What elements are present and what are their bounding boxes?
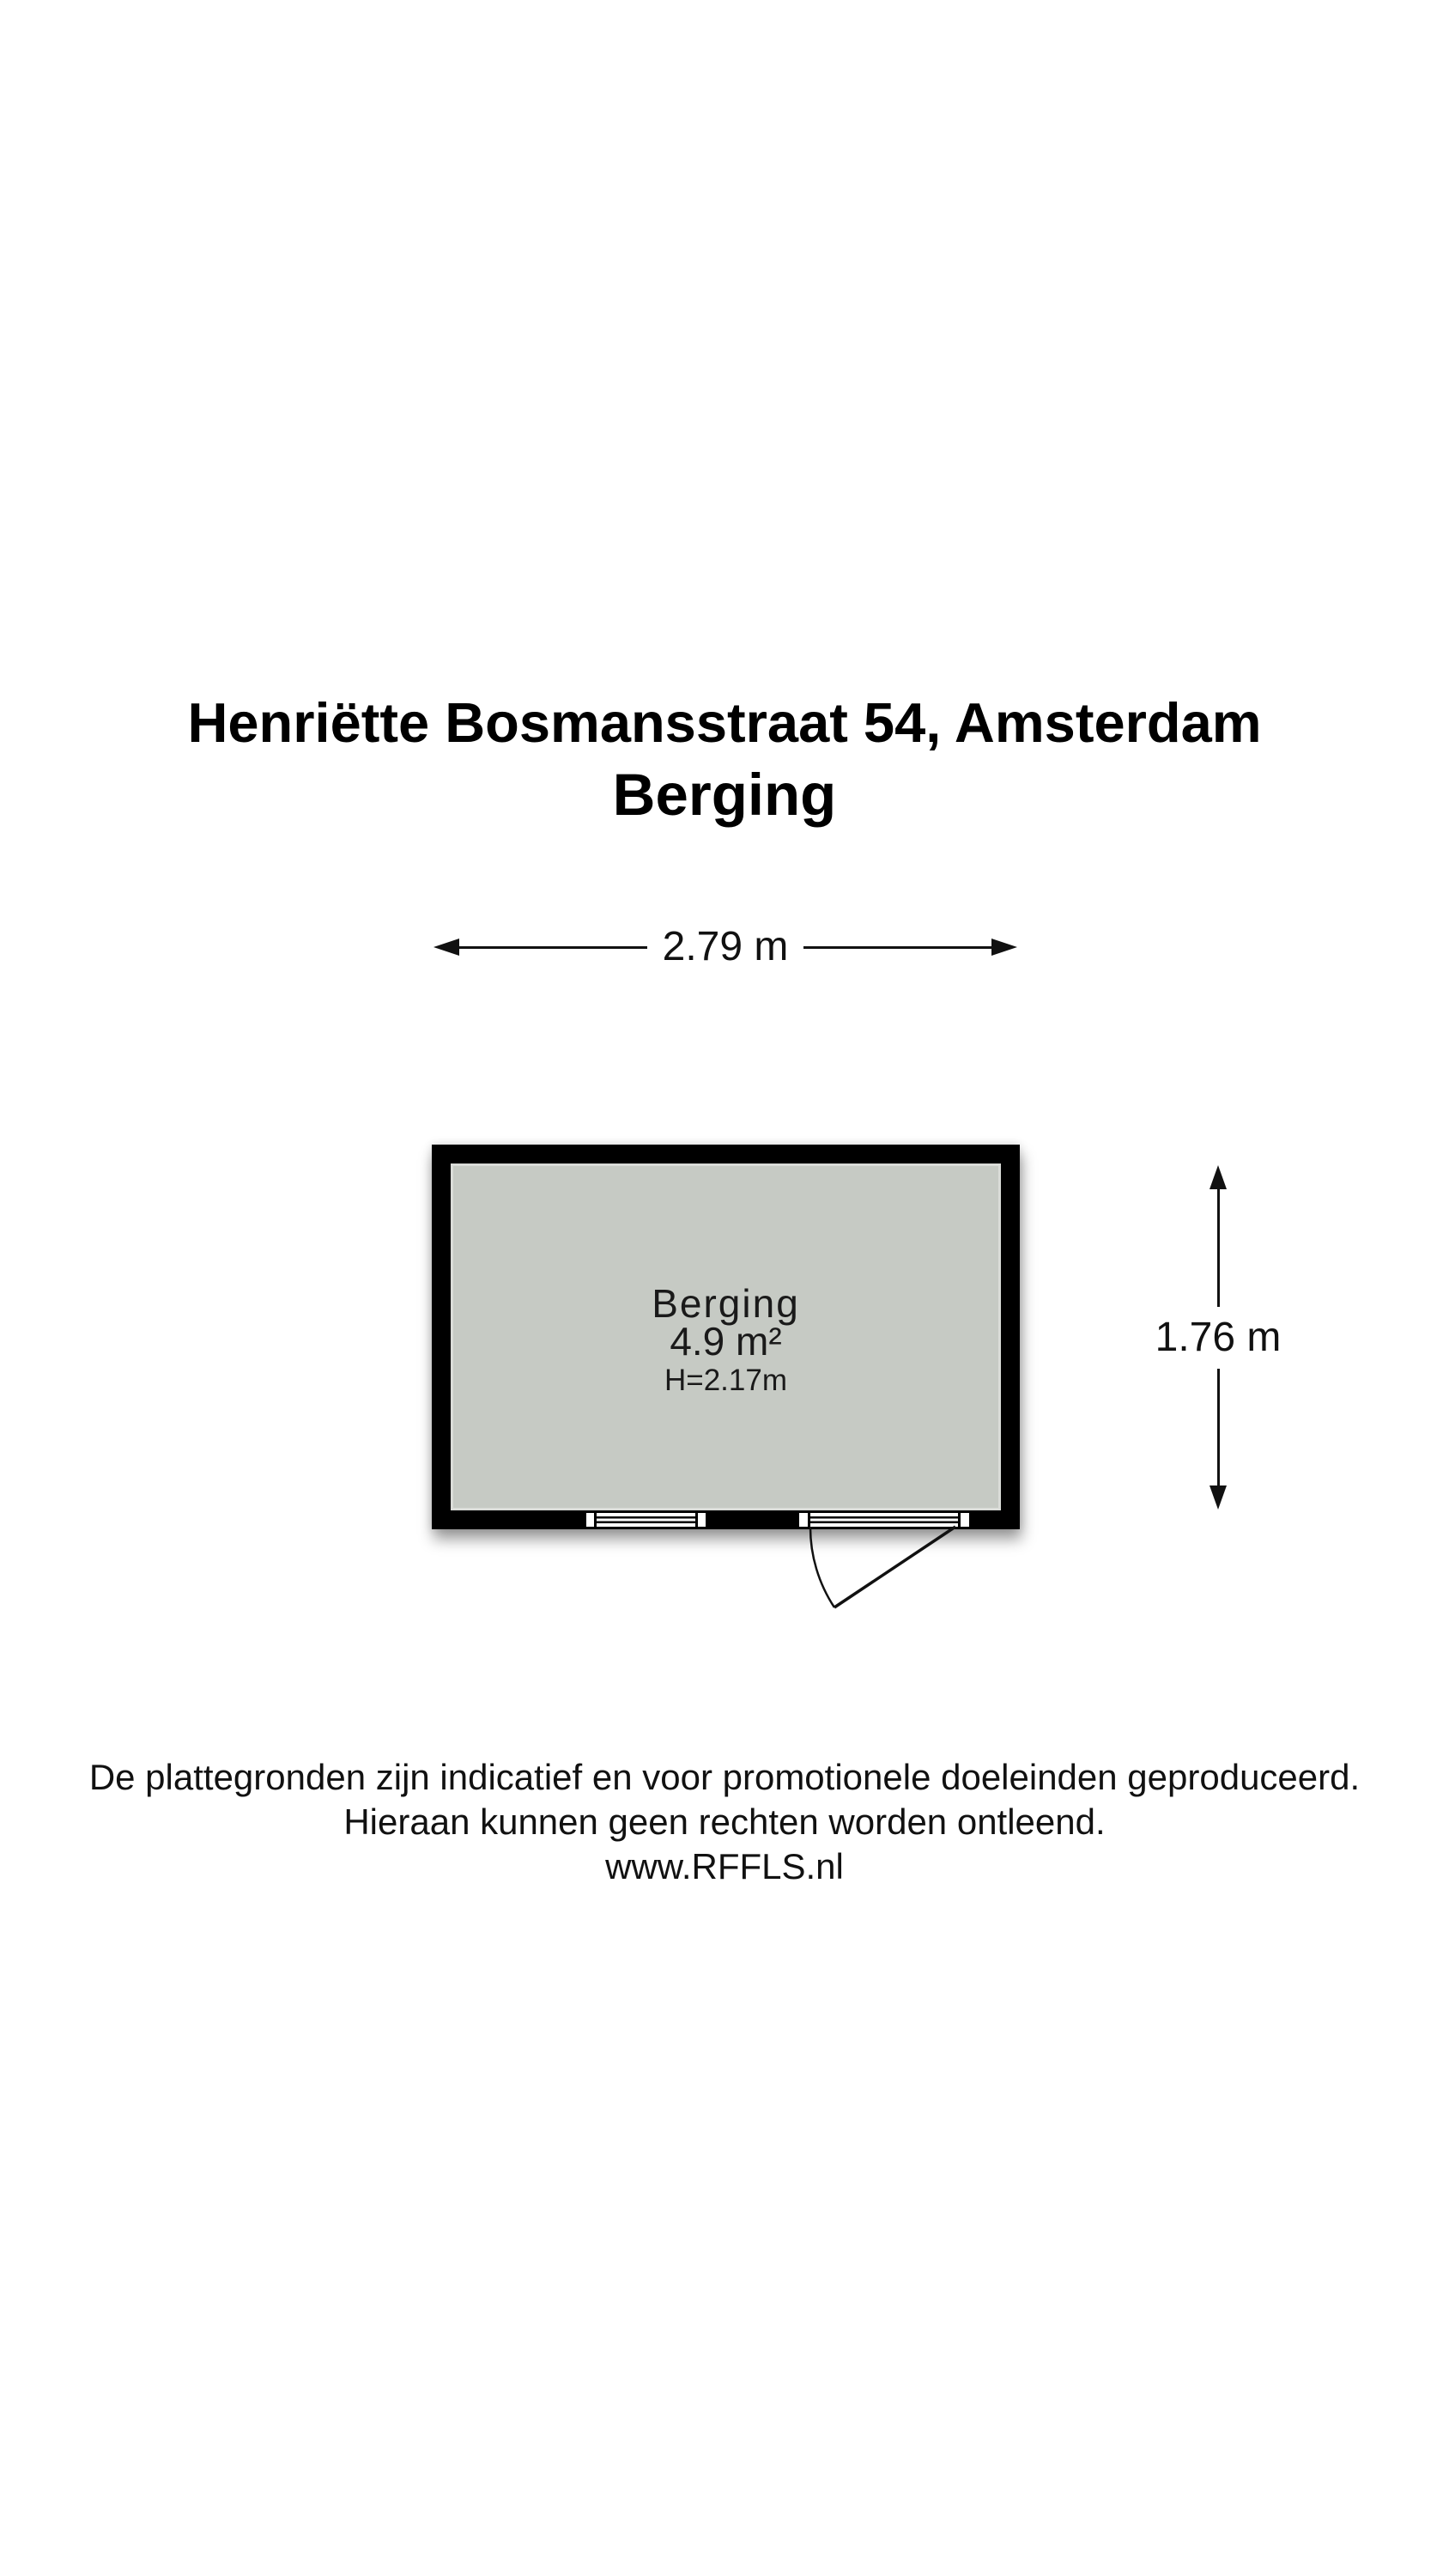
dimension-line [1217,1369,1220,1486]
arrowhead-left-icon [433,939,459,956]
window-glazing [597,1510,695,1529]
footer-disclaimer: De plattegronden zijn indicatief en voor… [0,1755,1449,1889]
room-type-title: Berging [0,759,1449,831]
arrowhead-right-icon [991,939,1017,956]
door-swing-arc [810,1527,834,1607]
window-frame-left [584,1510,597,1529]
dimension-line [1217,1189,1220,1307]
page-title: Henriëtte Bosmansstraat 54, Amsterdam Be… [0,687,1449,831]
dimension-line [459,946,647,949]
room-floor: Berging 4.9 m² H=2.17m [451,1163,1001,1510]
width-dimension-label: 2.79 m [647,923,804,971]
height-dimension: 1.76 m [1158,1165,1278,1510]
website-url: www.RFFLS.nl [0,1844,1449,1889]
arrowhead-down-icon [1210,1485,1227,1510]
height-dimension-label: 1.76 m [1155,1307,1282,1369]
room-label-block: Berging 4.9 m² H=2.17m [652,1285,800,1400]
address-title: Henriëtte Bosmansstraat 54, Amsterdam [0,687,1449,759]
room-name: Berging [652,1285,800,1322]
window [584,1510,708,1529]
disclaimer-line1: De plattegronden zijn indicatief en voor… [0,1755,1449,1800]
disclaimer-line2: Hieraan kunnen geen rechten worden ontle… [0,1800,1449,1844]
width-dimension: 2.79 m [433,913,1017,981]
floorplan-page: Henriëtte Bosmansstraat 54, Amsterdam Be… [0,0,1449,2576]
dimension-line [803,946,991,949]
door-swing-icon [755,1516,1013,1627]
arrowhead-up-icon [1210,1165,1227,1189]
room-berging: Berging 4.9 m² H=2.17m [432,1145,1020,1529]
door-leaf-line [834,1527,955,1607]
room-area: 4.9 m² [652,1322,800,1361]
window-frame-right [695,1510,708,1529]
room-ceiling-height: H=2.17m [652,1361,800,1400]
